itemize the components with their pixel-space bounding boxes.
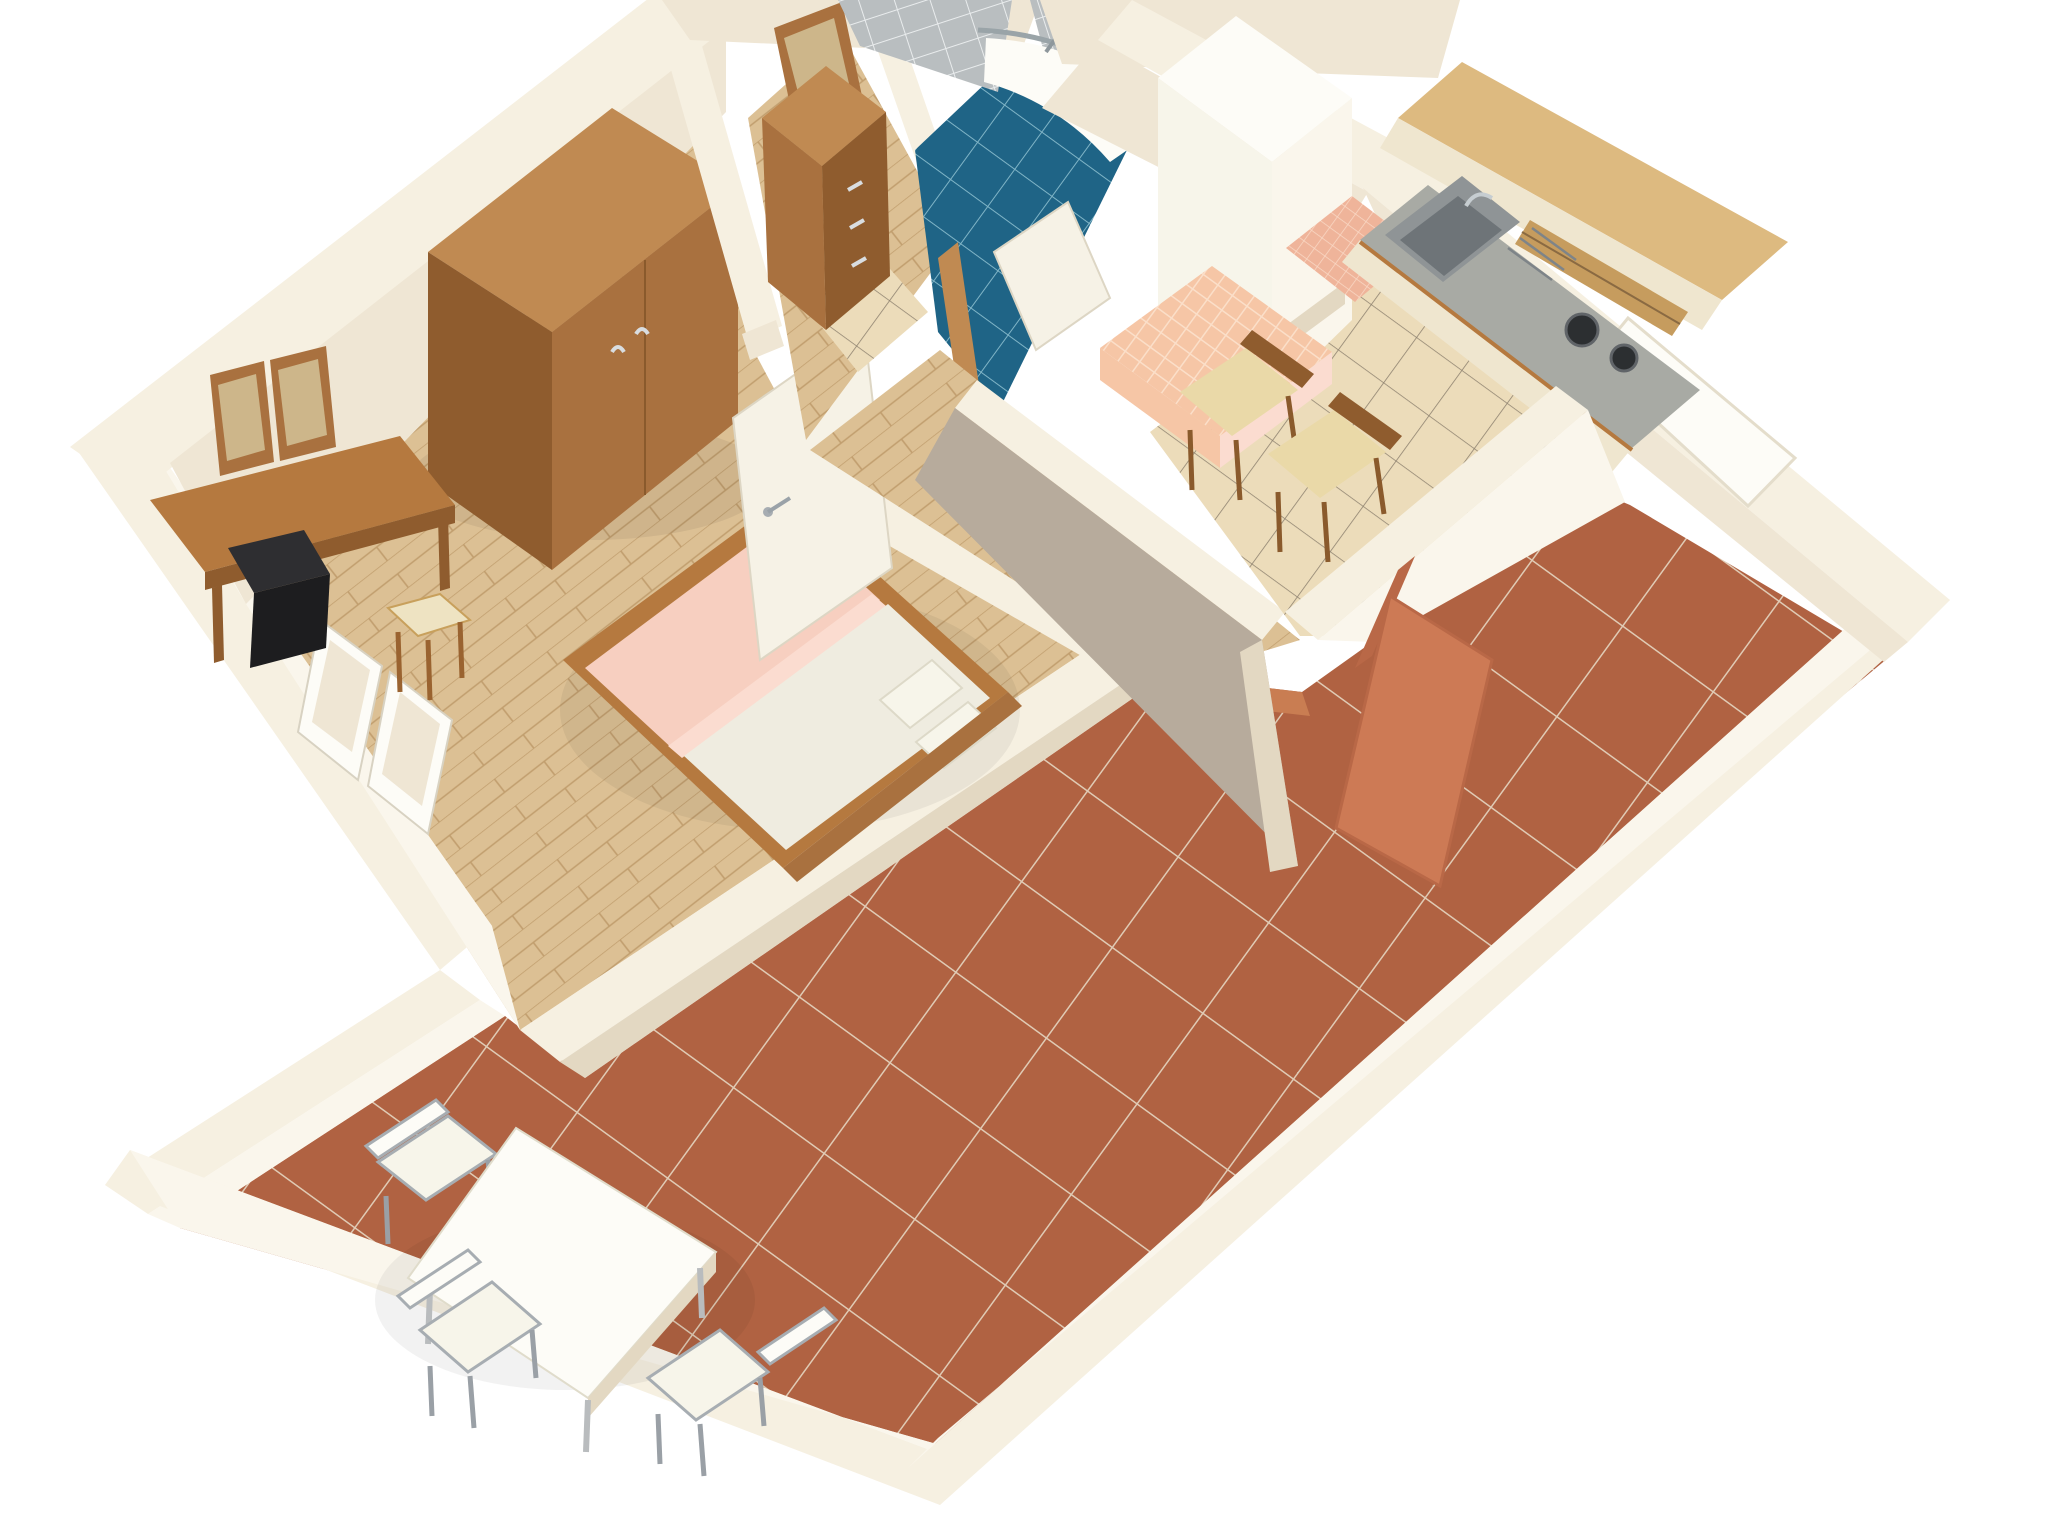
- chair-leg: [1278, 492, 1280, 552]
- stool-leg: [428, 640, 430, 700]
- table-leg: [700, 1268, 702, 1318]
- chair-leg: [430, 1366, 432, 1416]
- stool-leg: [460, 622, 462, 678]
- floor-plan-render: [0, 0, 2048, 1538]
- chair-leg: [386, 1196, 388, 1244]
- chair-leg: [1190, 430, 1192, 490]
- chair-leg: [658, 1414, 660, 1464]
- stool-leg: [398, 632, 400, 692]
- desk-leg: [438, 515, 450, 591]
- gas-burner-icon: [1611, 345, 1637, 371]
- floor-plan-canvas: [0, 0, 2048, 1538]
- desk-leg: [212, 585, 224, 663]
- table-leg: [586, 1400, 588, 1452]
- gas-burner-icon: [1566, 314, 1598, 346]
